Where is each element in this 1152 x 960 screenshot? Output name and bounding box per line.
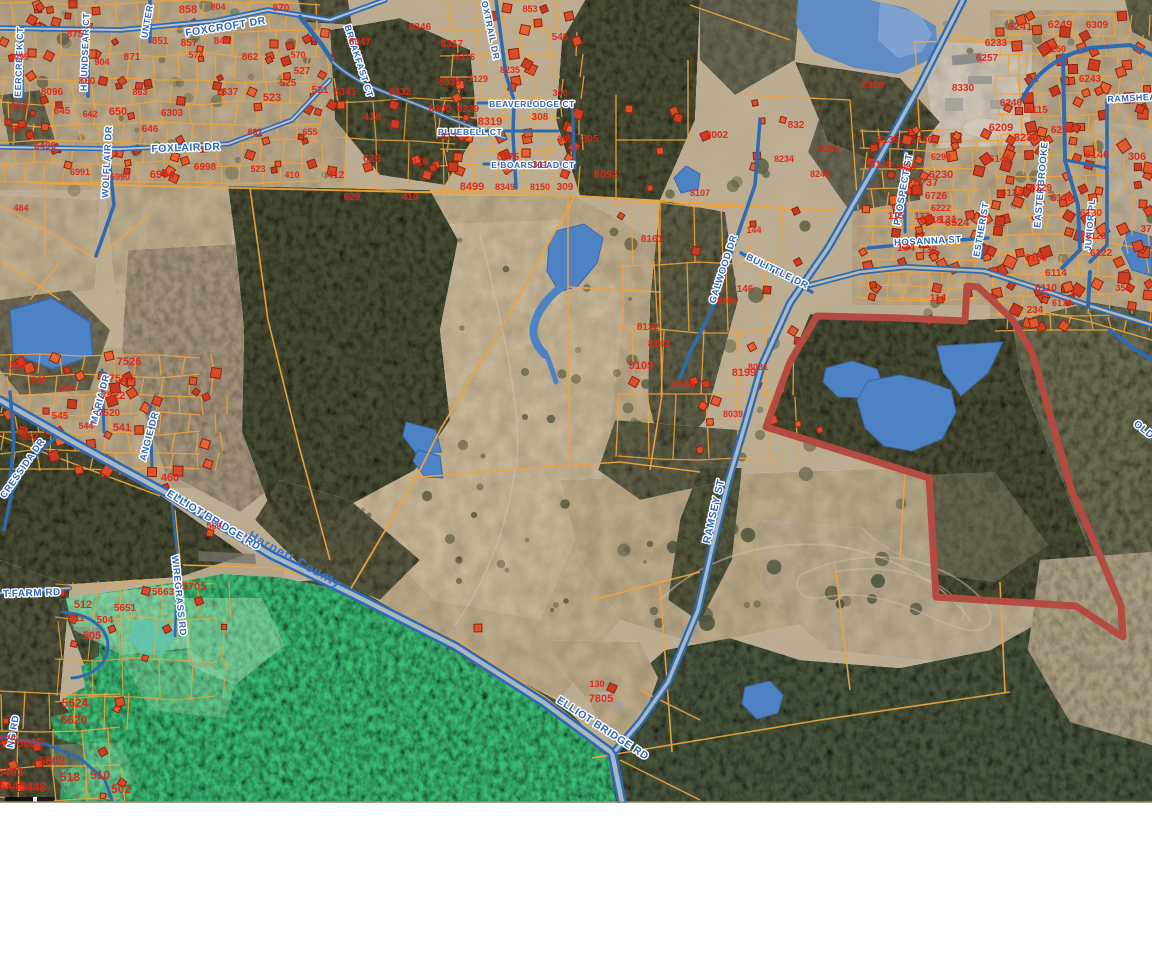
svg-text:860: 860 — [79, 76, 96, 87]
svg-text:5663: 5663 — [152, 587, 175, 598]
svg-text:849: 849 — [214, 36, 231, 47]
svg-text:300: 300 — [552, 88, 567, 98]
svg-text:6998: 6998 — [194, 162, 217, 173]
svg-text:646: 646 — [142, 124, 159, 135]
svg-text:858: 858 — [179, 4, 197, 16]
svg-text:8346: 8346 — [409, 22, 432, 33]
svg-text:544: 544 — [78, 421, 93, 431]
svg-text:410: 410 — [402, 192, 419, 203]
svg-text:6209: 6209 — [989, 122, 1013, 134]
svg-text:37: 37 — [1140, 224, 1152, 235]
svg-text:418: 418 — [363, 111, 381, 123]
svg-text:6110: 6110 — [1035, 283, 1057, 294]
svg-text:6124: 6124 — [1001, 188, 1024, 199]
svg-text:306: 306 — [1128, 151, 1146, 163]
svg-text:552: 552 — [22, 432, 39, 443]
svg-text:502: 502 — [111, 782, 131, 796]
svg-text:6114: 6114 — [1045, 268, 1067, 279]
svg-text:575: 575 — [0, 733, 17, 747]
svg-text:8119: 8119 — [869, 159, 893, 171]
svg-text:484: 484 — [13, 203, 28, 213]
svg-text:652: 652 — [10, 124, 25, 134]
svg-text:523: 523 — [250, 164, 265, 174]
svg-text:574: 574 — [188, 50, 203, 60]
svg-text:308: 308 — [532, 112, 549, 123]
svg-text:8205: 8205 — [818, 144, 841, 155]
svg-text:629: 629 — [344, 192, 361, 203]
svg-text:6122: 6122 — [1090, 248, 1113, 259]
svg-text:8100: 8100 — [671, 379, 695, 391]
svg-text:6109: 6109 — [1025, 253, 1048, 264]
svg-text:356: 356 — [1115, 283, 1130, 293]
svg-text:6737: 6737 — [914, 177, 938, 189]
svg-text:628: 628 — [363, 153, 381, 165]
svg-text:7522: 7522 — [101, 390, 125, 402]
svg-text:8095: 8095 — [896, 162, 916, 172]
svg-text:417: 417 — [441, 132, 458, 143]
svg-text:133: 133 — [914, 211, 929, 221]
svg-text:T.FARM RD: T.FARM RD — [3, 587, 61, 600]
svg-text:7805: 7805 — [589, 693, 613, 705]
svg-text:512: 512 — [74, 599, 92, 611]
svg-text:8347: 8347 — [349, 37, 372, 48]
svg-text:8107: 8107 — [690, 188, 710, 198]
svg-text:857: 857 — [181, 38, 198, 49]
svg-text:650: 650 — [10, 101, 28, 113]
svg-text:8316: 8316 — [455, 52, 475, 62]
svg-text:6241: 6241 — [1008, 21, 1032, 33]
svg-text:832: 832 — [788, 120, 805, 131]
svg-text:6257: 6257 — [976, 53, 999, 64]
svg-text:525: 525 — [280, 78, 297, 89]
svg-text:311: 311 — [532, 160, 549, 171]
svg-text:511: 511 — [70, 613, 85, 623]
svg-text:6298: 6298 — [931, 152, 951, 162]
svg-text:6176: 6176 — [1052, 298, 1072, 308]
svg-text:6309: 6309 — [1086, 20, 1109, 31]
svg-text:510: 510 — [90, 768, 110, 782]
svg-text:521: 521 — [312, 85, 329, 96]
svg-text:132: 132 — [921, 245, 938, 256]
svg-text:6726: 6726 — [925, 191, 948, 202]
svg-text:541: 541 — [113, 422, 131, 434]
svg-text:8332: 8332 — [389, 87, 412, 98]
svg-text:412: 412 — [328, 170, 345, 181]
svg-text:8099: 8099 — [9, 52, 29, 62]
svg-text:8142: 8142 — [648, 339, 671, 350]
svg-text:3129: 3129 — [468, 74, 488, 84]
svg-text:6233: 6233 — [985, 38, 1008, 49]
svg-text:305: 305 — [557, 134, 572, 144]
svg-text:8234: 8234 — [774, 154, 794, 164]
svg-text:6222: 6222 — [931, 203, 951, 213]
svg-text:6200: 6200 — [1051, 125, 1074, 136]
svg-text:8317: 8317 — [441, 39, 464, 50]
svg-text:875: 875 — [67, 29, 84, 40]
svg-text:545: 545 — [52, 411, 69, 422]
svg-text:5651: 5651 — [114, 603, 137, 614]
svg-text:8229: 8229 — [457, 104, 480, 115]
svg-text:7526: 7526 — [117, 356, 141, 368]
svg-text:655: 655 — [302, 127, 317, 137]
svg-text:8499: 8499 — [460, 181, 484, 193]
svg-text:130: 130 — [589, 679, 604, 689]
svg-text:904: 904 — [94, 57, 109, 67]
svg-text:8096: 8096 — [41, 87, 64, 98]
svg-text:234: 234 — [1027, 305, 1044, 316]
svg-text:527: 527 — [294, 66, 311, 77]
svg-text:6746: 6746 — [911, 135, 934, 146]
svg-text:5448: 5448 — [20, 780, 47, 794]
svg-text:460: 460 — [161, 472, 179, 484]
svg-text:6243: 6243 — [1079, 74, 1102, 85]
svg-text:6115: 6115 — [1026, 105, 1048, 116]
svg-text:664: 664 — [8, 360, 27, 372]
svg-text:9105: 9105 — [629, 360, 653, 372]
svg-text:642: 642 — [82, 109, 97, 119]
svg-text:6130: 6130 — [1080, 208, 1103, 219]
svg-text:851: 851 — [152, 36, 169, 47]
svg-text:871: 871 — [124, 52, 141, 63]
svg-text:6991: 6991 — [70, 167, 90, 177]
svg-text:8132: 8132 — [637, 322, 660, 333]
svg-text:8150: 8150 — [530, 182, 550, 192]
svg-text:8248: 8248 — [810, 169, 830, 179]
svg-text:8330: 8330 — [952, 83, 975, 94]
svg-text:6990: 6990 — [110, 172, 130, 182]
svg-text:8039: 8039 — [723, 409, 743, 419]
svg-text:8161: 8161 — [641, 234, 664, 245]
svg-text:637: 637 — [222, 87, 239, 98]
svg-text:863: 863 — [132, 87, 147, 97]
svg-text:6146: 6146 — [989, 154, 1012, 165]
svg-text:8230: 8230 — [1014, 132, 1038, 144]
svg-text:6138: 6138 — [1051, 193, 1074, 204]
svg-text:862: 862 — [242, 52, 259, 63]
svg-text:8341: 8341 — [334, 87, 357, 98]
svg-text:5620: 5620 — [61, 713, 88, 727]
svg-text:870: 870 — [273, 3, 290, 14]
svg-text:134: 134 — [897, 242, 916, 254]
svg-text:8300: 8300 — [429, 104, 452, 115]
svg-text:8235: 8235 — [500, 65, 520, 75]
svg-text:8092: 8092 — [594, 169, 618, 181]
svg-text:8338: 8338 — [439, 77, 462, 88]
svg-text:8166: 8166 — [717, 296, 737, 306]
svg-text:6524: 6524 — [945, 217, 970, 229]
svg-text:8002: 8002 — [706, 130, 729, 141]
svg-text:309: 309 — [557, 182, 574, 193]
svg-text:305: 305 — [582, 134, 599, 145]
svg-text:523: 523 — [263, 92, 281, 104]
svg-text:8349: 8349 — [495, 182, 515, 192]
svg-text:650: 650 — [109, 106, 127, 118]
svg-text:7524: 7524 — [109, 373, 134, 385]
svg-text:6994: 6994 — [150, 169, 175, 181]
svg-text:546: 546 — [552, 32, 569, 43]
svg-text:BEAVERLODGE CT: BEAVERLODGE CT — [489, 99, 575, 109]
svg-text:560: 560 — [206, 521, 221, 531]
svg-text:5705: 5705 — [182, 581, 206, 593]
svg-text:504: 504 — [97, 615, 114, 626]
svg-text:640: 640 — [31, 375, 46, 385]
svg-text:410: 410 — [284, 170, 299, 180]
svg-text:6249: 6249 — [1048, 19, 1072, 31]
svg-text:115: 115 — [888, 211, 905, 222]
svg-text:5608: 5608 — [39, 754, 66, 768]
svg-text:6126: 6126 — [1086, 231, 1106, 241]
svg-text:570: 570 — [290, 50, 305, 60]
svg-text:5605: 5605 — [17, 736, 44, 750]
svg-text:8319: 8319 — [478, 116, 502, 128]
svg-text:6496: 6496 — [34, 141, 57, 152]
svg-text:505: 505 — [83, 630, 101, 642]
svg-text:6246: 6246 — [1000, 98, 1023, 109]
svg-text:7520: 7520 — [98, 408, 121, 419]
svg-text:8199: 8199 — [732, 367, 756, 379]
svg-text:8309: 8309 — [862, 80, 885, 91]
svg-text:6250: 6250 — [1046, 44, 1066, 54]
svg-text:6146: 6146 — [1085, 149, 1109, 161]
svg-text:5463: 5463 — [0, 765, 24, 779]
svg-text:645: 645 — [54, 106, 71, 117]
svg-text:853: 853 — [522, 4, 537, 14]
svg-text:649: 649 — [58, 383, 73, 393]
svg-text:867: 867 — [247, 127, 262, 137]
svg-text:144: 144 — [746, 225, 761, 235]
svg-text:518: 518 — [60, 770, 80, 784]
svg-text:6303: 6303 — [161, 108, 184, 119]
svg-text:114: 114 — [930, 293, 947, 304]
svg-text:804: 804 — [210, 2, 225, 12]
svg-text:5624: 5624 — [62, 696, 89, 710]
svg-text:FOXLAIR DR: FOXLAIR DR — [151, 141, 221, 155]
svg-text:6135: 6135 — [877, 135, 900, 146]
svg-text:146: 146 — [737, 284, 754, 295]
svg-text:8275: 8275 — [497, 152, 520, 163]
svg-text:416: 416 — [412, 157, 429, 168]
svg-text:6129: 6129 — [1030, 183, 1053, 194]
